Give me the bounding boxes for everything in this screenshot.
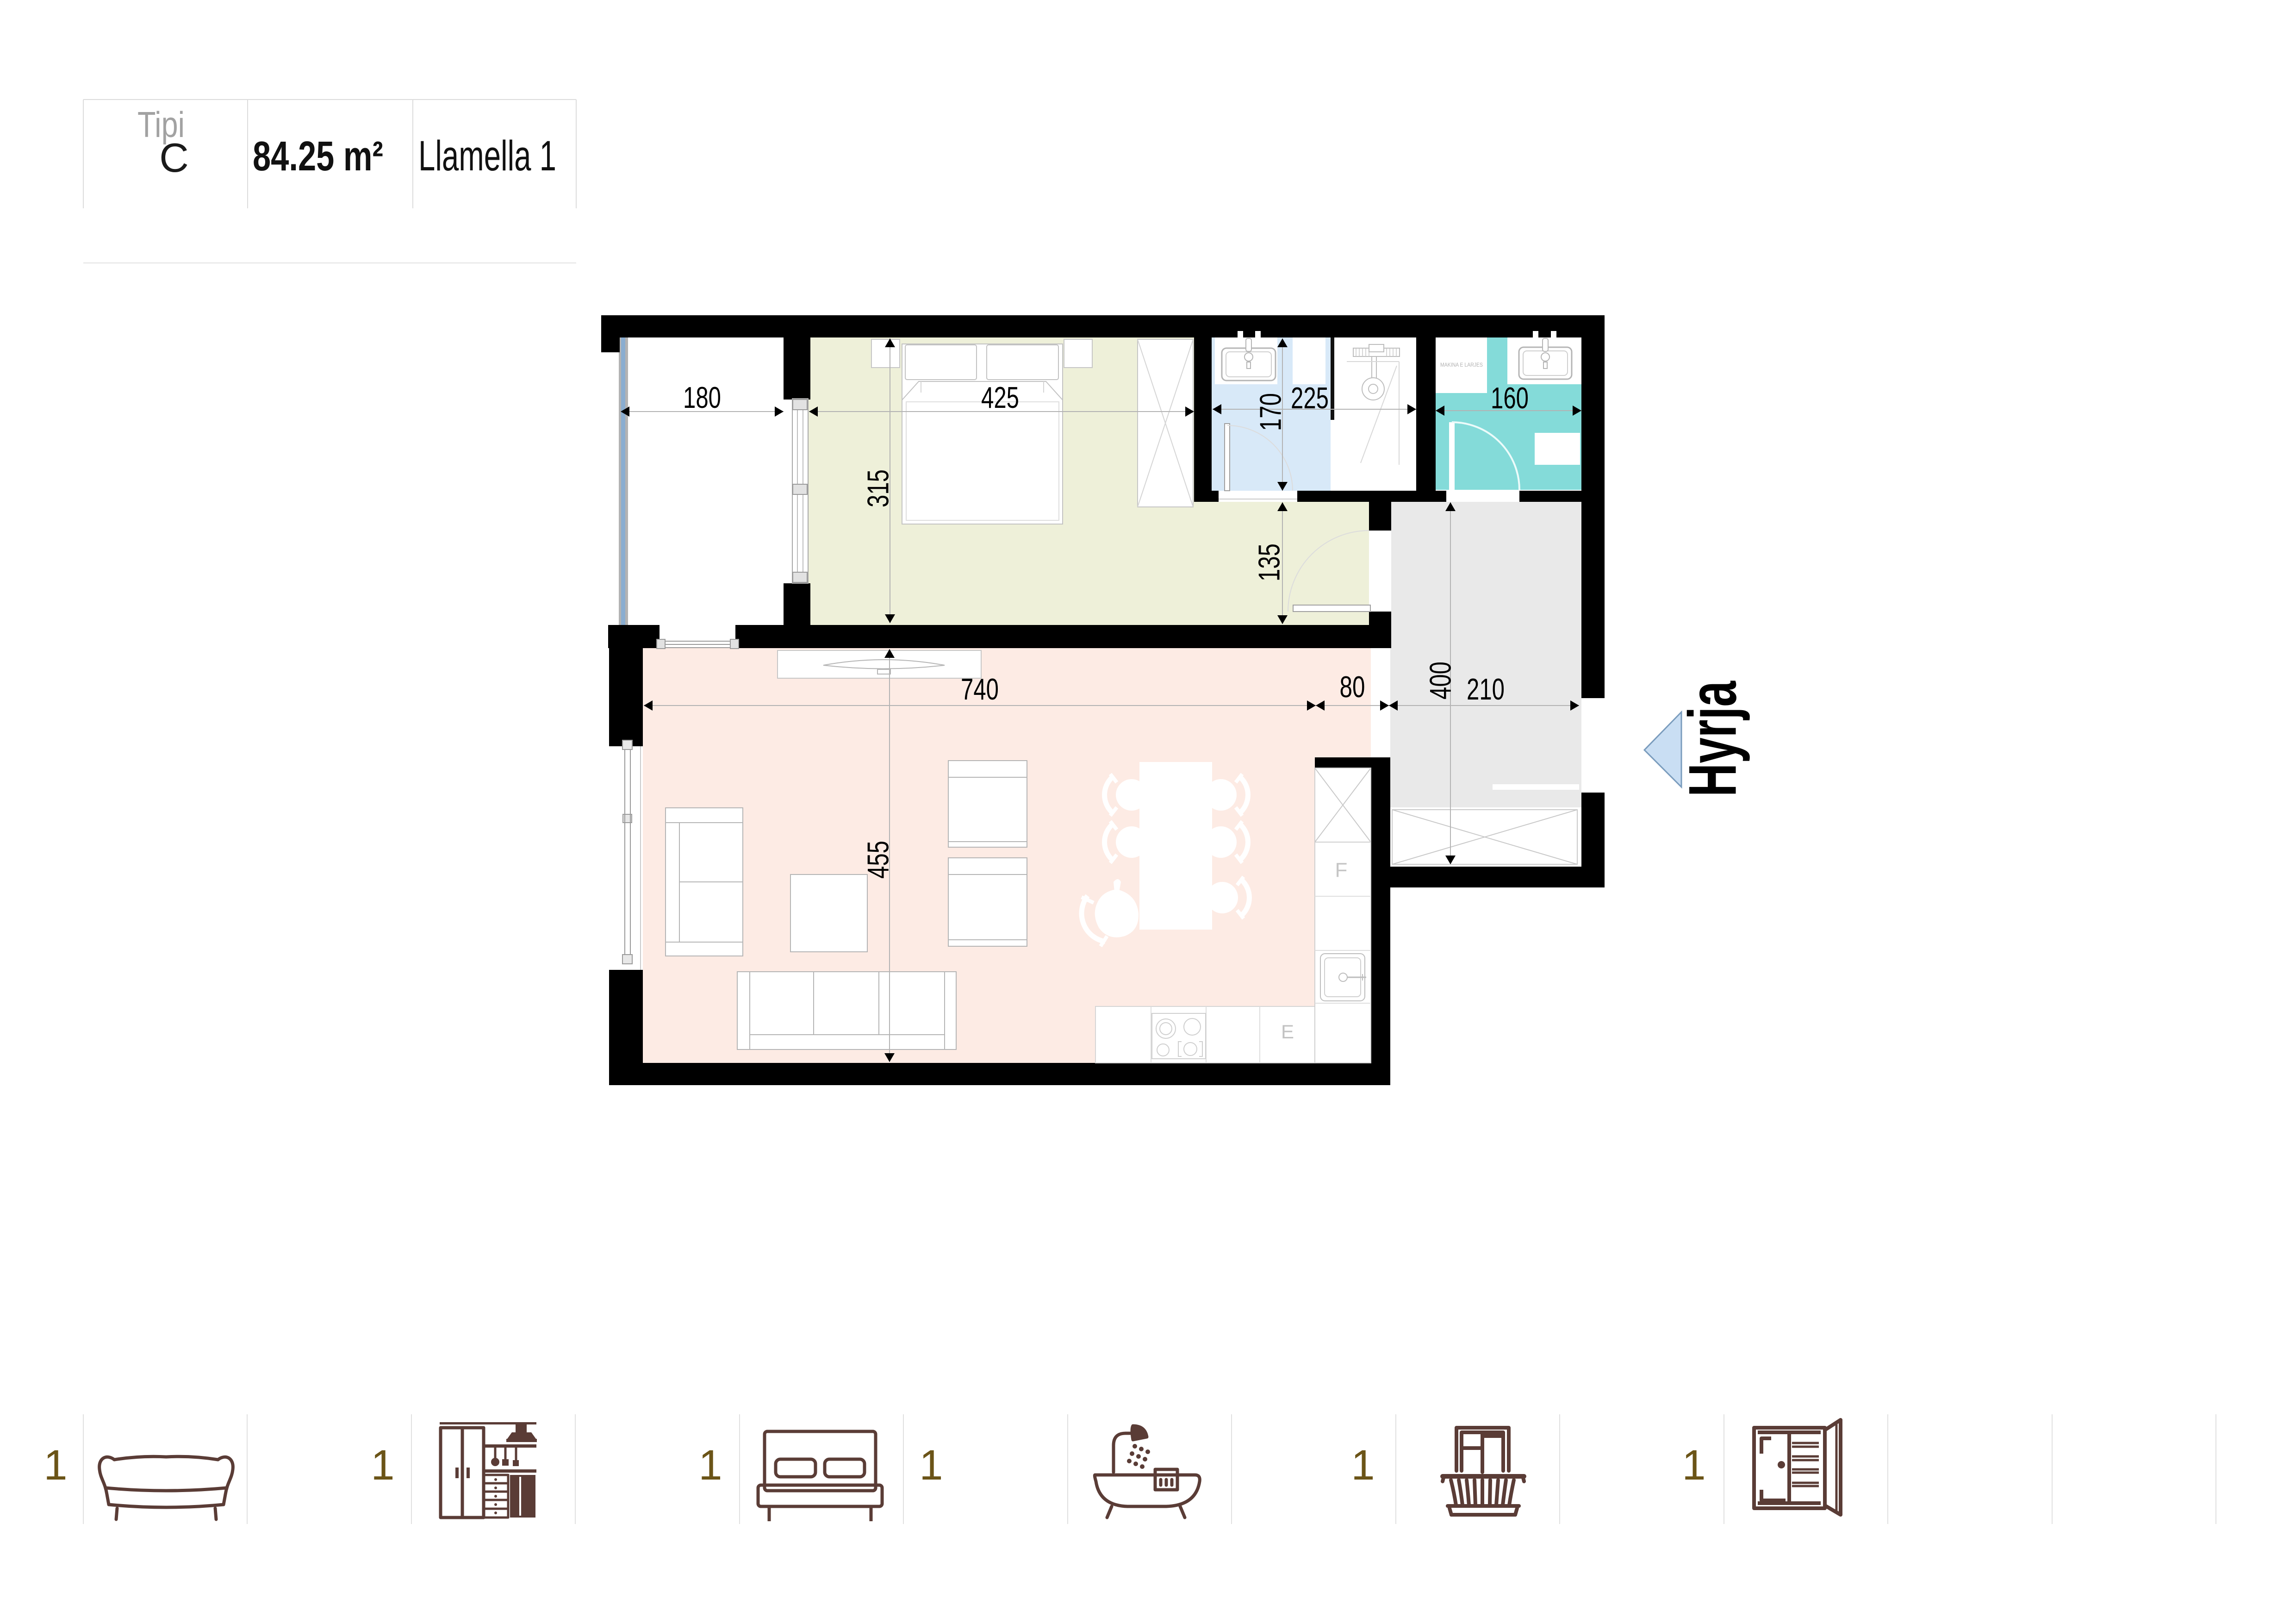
- svg-text:170: 170: [1254, 393, 1288, 431]
- svg-text:400: 400: [1424, 662, 1457, 700]
- svg-text:Hyrja: Hyrja: [1675, 681, 1750, 797]
- svg-text:455: 455: [861, 841, 895, 879]
- svg-text:740: 740: [961, 672, 999, 706]
- svg-text:Llamella 1: Llamella 1: [418, 132, 556, 180]
- svg-text:180: 180: [683, 381, 721, 414]
- svg-text:1: 1: [698, 1442, 722, 1489]
- svg-text:1: 1: [1682, 1442, 1705, 1489]
- svg-text:C: C: [159, 135, 189, 181]
- svg-text:135: 135: [1252, 543, 1286, 581]
- svg-text:F: F: [1335, 859, 1348, 881]
- svg-text:225: 225: [1291, 381, 1329, 415]
- svg-text:315: 315: [861, 469, 895, 507]
- svg-text:1: 1: [1351, 1442, 1375, 1489]
- svg-text:1: 1: [44, 1442, 67, 1489]
- svg-text:1: 1: [371, 1442, 394, 1489]
- svg-text:MAKINA E LARJES: MAKINA E LARJES: [1440, 362, 1483, 368]
- svg-text:160: 160: [1491, 381, 1529, 415]
- svg-text:1: 1: [919, 1442, 943, 1489]
- svg-text:E: E: [1281, 1021, 1294, 1043]
- svg-text:80: 80: [1340, 670, 1365, 704]
- svg-text:84.25 m²: 84.25 m²: [253, 133, 383, 180]
- svg-text:210: 210: [1467, 672, 1505, 706]
- svg-text:425: 425: [981, 381, 1019, 414]
